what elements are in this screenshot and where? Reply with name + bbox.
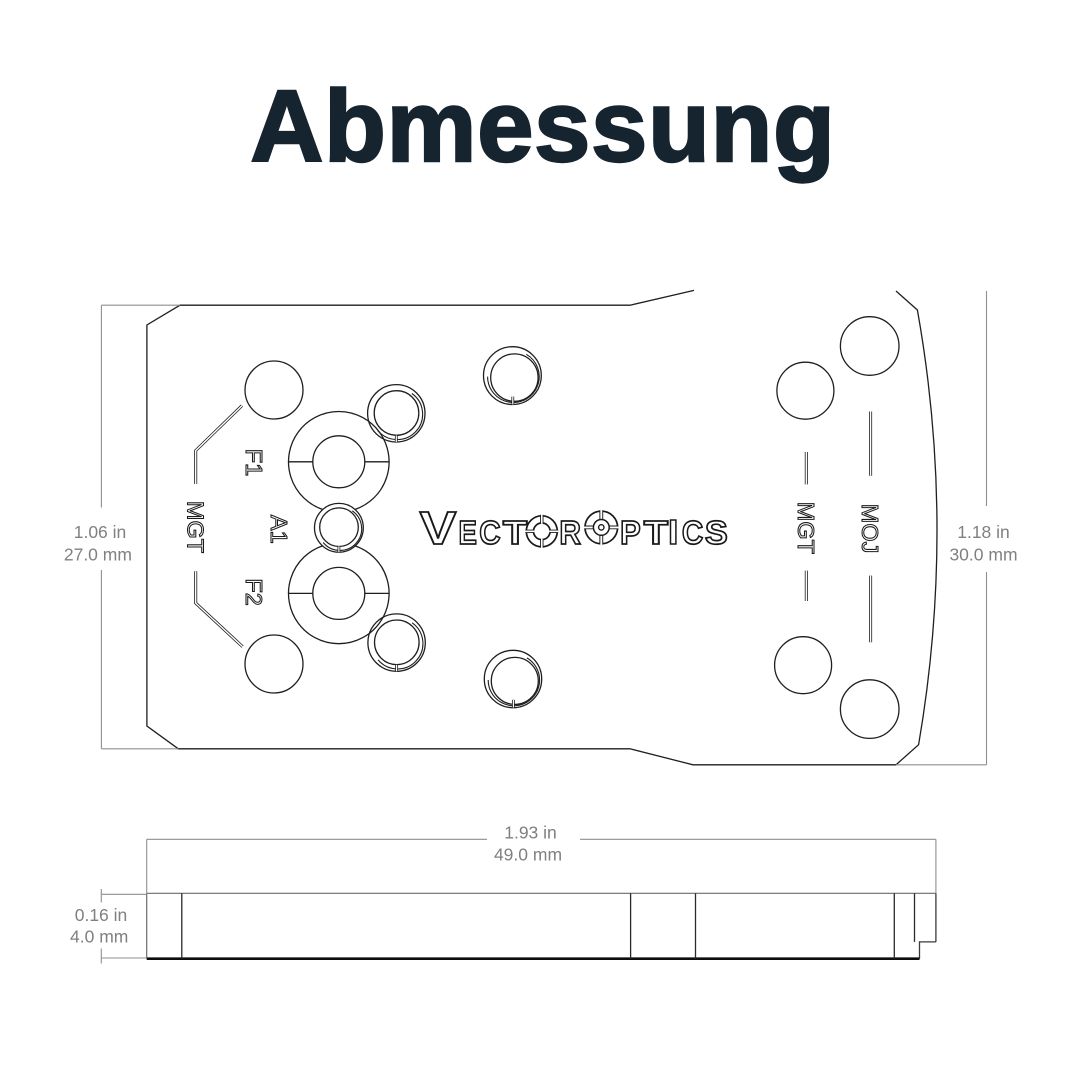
- svg-text:4.0 mm: 4.0 mm: [70, 927, 128, 947]
- svg-text:P: P: [620, 514, 641, 551]
- svg-text:E: E: [459, 514, 477, 551]
- svg-text:27.0 mm: 27.0 mm: [64, 544, 132, 564]
- svg-text:MOJ: MOJ: [857, 504, 883, 554]
- svg-text:V: V: [420, 502, 457, 554]
- svg-text:1.93 in: 1.93 in: [504, 823, 557, 843]
- svg-text:A1: A1: [266, 515, 292, 544]
- svg-text:1.06 in: 1.06 in: [74, 522, 127, 542]
- svg-text:MGT: MGT: [183, 501, 209, 553]
- svg-text:Abmessung: Abmessung: [250, 71, 835, 183]
- svg-text:C: C: [479, 514, 500, 551]
- svg-text:1.18 in: 1.18 in: [957, 522, 1010, 542]
- svg-text:49.0 mm: 49.0 mm: [494, 845, 562, 865]
- svg-text:MGT: MGT: [793, 502, 819, 554]
- svg-text:R: R: [559, 514, 581, 551]
- svg-text:S: S: [705, 514, 728, 551]
- svg-text:F1: F1: [241, 449, 267, 476]
- svg-text:30.0 mm: 30.0 mm: [949, 544, 1017, 564]
- svg-text:F2: F2: [241, 578, 267, 605]
- svg-text:T: T: [503, 514, 527, 551]
- svg-text:C: C: [682, 514, 703, 551]
- svg-text:0.16 in: 0.16 in: [75, 905, 128, 925]
- svg-text:T: T: [644, 514, 668, 551]
